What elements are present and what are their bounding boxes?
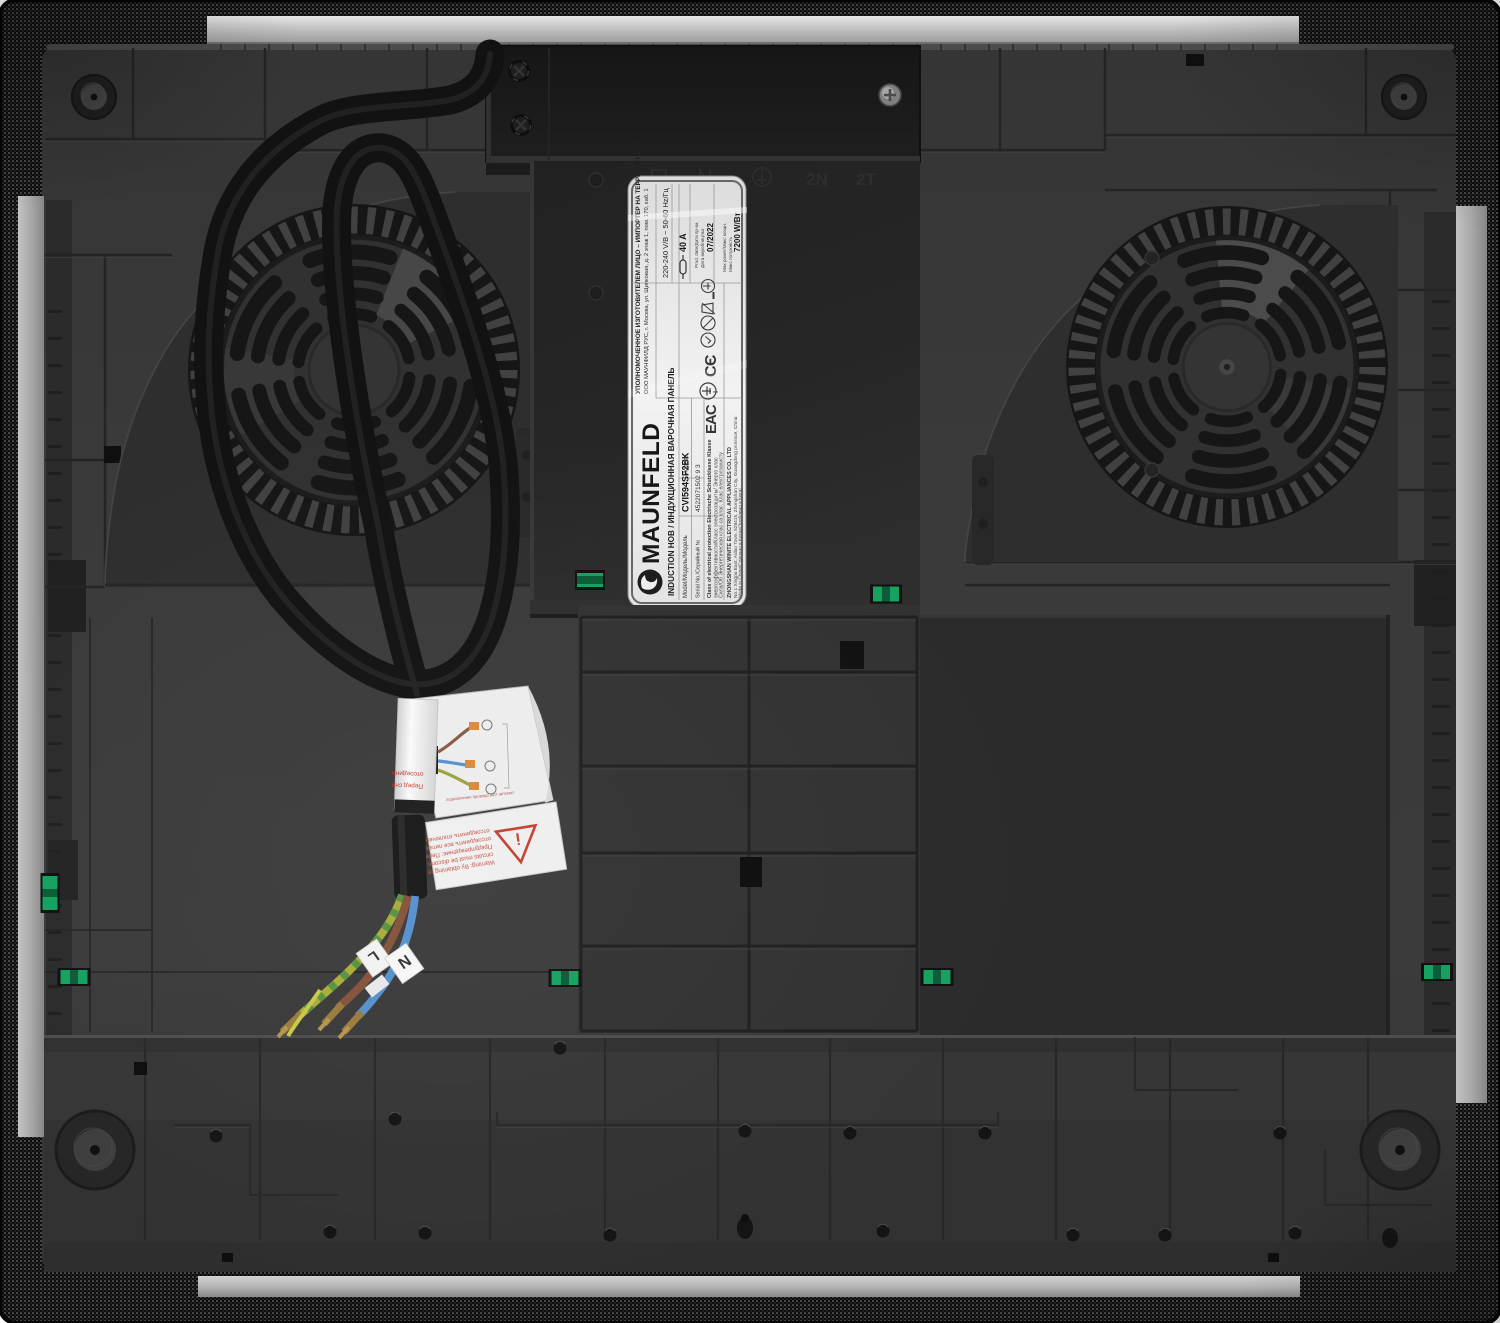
- svg-text:Дата виробництва: Дата виробництва: [700, 229, 705, 268]
- svg-text:EAC: EAC: [703, 404, 720, 434]
- svg-text:УПОЛНОМОЧЕННОЕ ИЗГОТОВИТЕЛЕМ Л: УПОЛНОМОЧЕННОЕ ИЗГОТОВИТЕЛЕМ ЛИЦО – ИМПО…: [635, 138, 642, 394]
- svg-text:07/2022: 07/2022: [706, 223, 715, 252]
- svg-text:Prod. date/Дата пр-ва: Prod. date/Дата пр-ва: [694, 222, 699, 268]
- svg-text:Max power/Макс мощн.: Max power/Макс мощн.: [722, 223, 727, 272]
- svg-text:220-240 V/B ~ 50-60 Hz/Гц: 220-240 V/B ~ 50-60 Hz/Гц: [661, 187, 670, 278]
- svg-text:40 A: 40 A: [678, 233, 688, 252]
- svg-text:7200 W/Вт: 7200 W/Вт: [733, 213, 742, 252]
- svg-text:2T: 2T: [856, 170, 876, 189]
- svg-text:2N: 2N: [806, 170, 828, 189]
